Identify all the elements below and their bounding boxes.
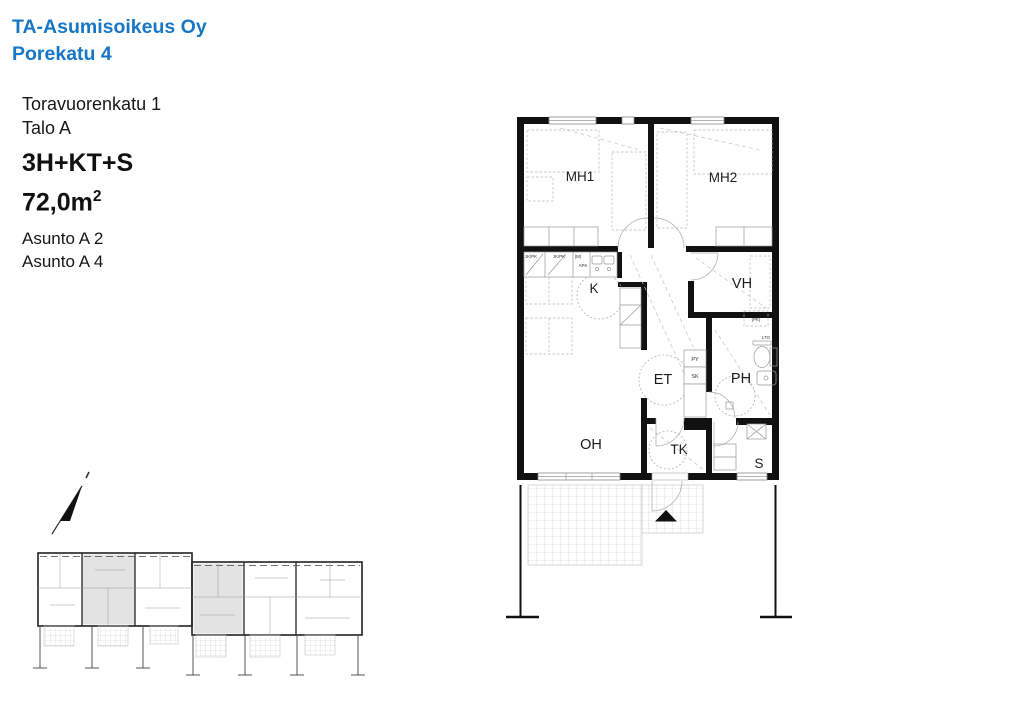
site-plan (25, 540, 375, 680)
apartment-area: 72,0m2 (22, 180, 133, 219)
label-microwave: (M) (575, 254, 582, 259)
floorplan-sheet: { "header": { "company": "TA-Asumisoikeu… (0, 0, 1024, 724)
room-label-ph: PH (731, 371, 751, 387)
room-label-mh2: MH2 (709, 170, 738, 185)
room-label-et: ET (654, 372, 673, 388)
address-block: Toravuorenkatu 1 Talo A (22, 92, 161, 140)
apartment-1: Asunto A 2 (22, 228, 103, 251)
company-header: TA-Asumisoikeus Oy Porekatu 4 (12, 14, 207, 68)
project-name: Porekatu 4 (12, 41, 207, 68)
building-name: Talo A (22, 116, 161, 140)
label-fridge-1: JK/PK (525, 254, 537, 259)
room-label-k: K (589, 281, 598, 296)
highlighted-units (82, 555, 243, 634)
apartment-list: Asunto A 2 Asunto A 4 (22, 228, 103, 273)
apartment-2: Asunto A 4 (22, 251, 103, 274)
room-label-vh: VH (732, 276, 752, 292)
room-label-mh1: MH1 (566, 169, 595, 184)
area-superscript: 2 (93, 188, 102, 205)
room-label-oh: OH (580, 437, 602, 453)
room-labels: MH1 MH2 K VH ET PH OH TK S (566, 169, 764, 471)
label-cleaning-closet: SK (691, 374, 699, 380)
terrace (506, 481, 792, 617)
apartment-type-block: 3H+KT+S 72,0m2 (22, 146, 133, 219)
street-address: Toravuorenkatu 1 (22, 92, 161, 116)
label-dishwasher: APK (579, 263, 588, 268)
label-heat-recovery: LTO (762, 335, 771, 340)
apartment-type: 3H+KT+S (22, 146, 133, 180)
floor-plan: MH1 MH2 K VH ET PH OH TK S JK/PK JK/PK (… (505, 105, 805, 635)
room-label-tk: TK (670, 442, 687, 457)
label-washer-reservation: (PK) (752, 317, 761, 322)
label-fridge-2: JK/PK (553, 254, 565, 259)
company-name: TA-Asumisoikeus Oy (12, 14, 207, 41)
room-label-s: S (754, 456, 763, 471)
turning-circles (577, 273, 755, 469)
north-arrow-icon (40, 465, 100, 540)
label-laundry: PY (691, 357, 699, 363)
site-terraces (44, 626, 335, 657)
